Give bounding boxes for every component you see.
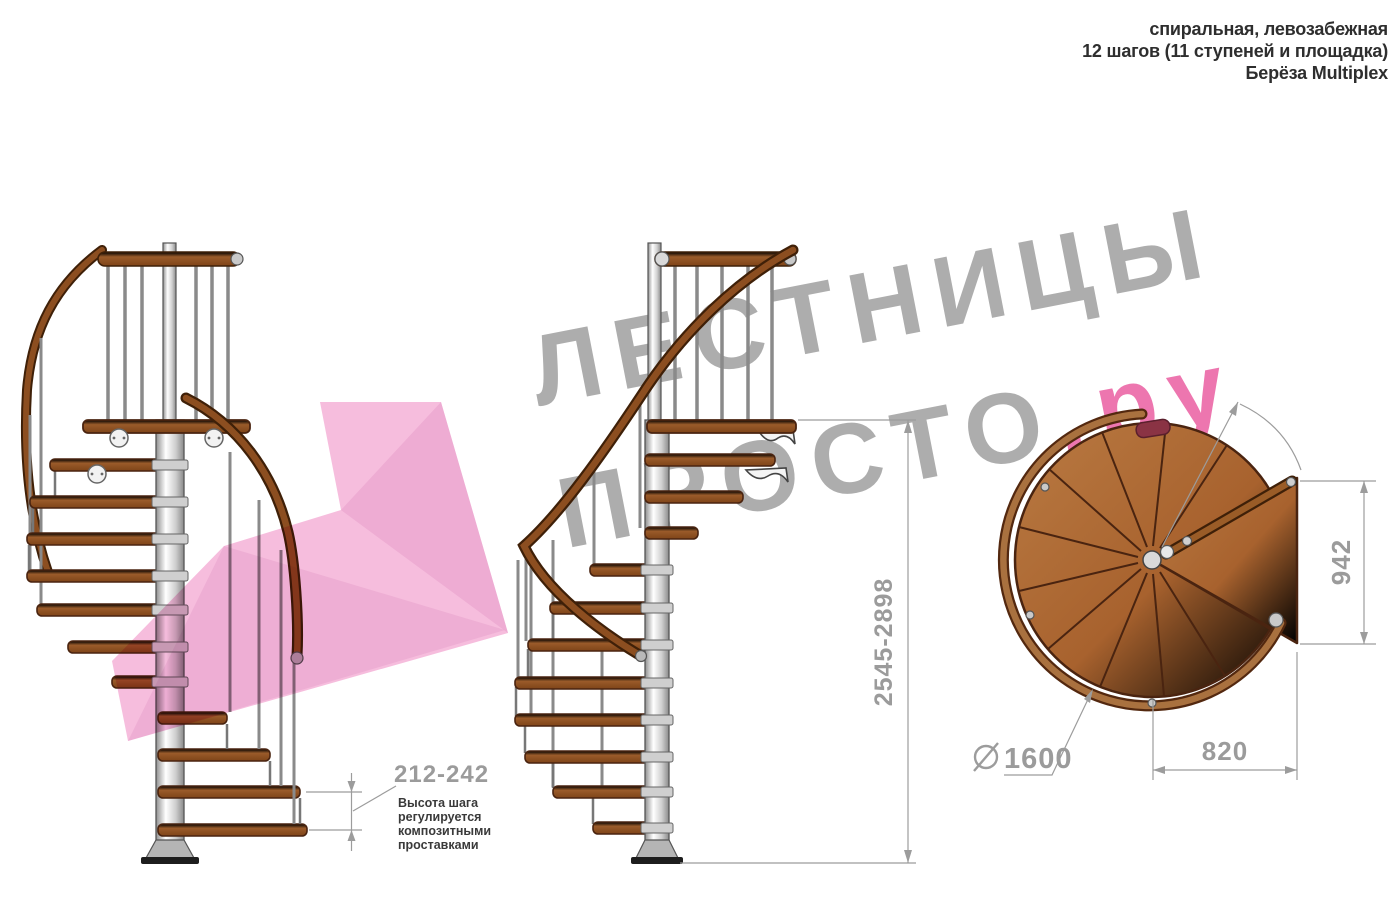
top-rail	[98, 252, 240, 266]
step-height-dimension	[306, 773, 396, 851]
support-bracket	[746, 468, 788, 482]
railing-post	[163, 243, 176, 425]
hole	[208, 437, 211, 440]
spacer	[641, 565, 673, 575]
title-block: спиральная, левозабежная 12 шагов (11 ст…	[1082, 18, 1388, 84]
step-height-note: Высота шага регулируется композитными пр…	[398, 796, 491, 852]
note-line: проставками	[398, 838, 491, 852]
spacer	[152, 497, 188, 507]
dim-arrow	[348, 830, 356, 841]
railing-post	[648, 243, 661, 425]
spacer	[641, 787, 673, 797]
note-line: композитными	[398, 824, 491, 838]
ferrule	[1269, 613, 1283, 627]
step	[645, 491, 743, 503]
note-line: Высота шага	[398, 796, 491, 810]
spacer	[641, 603, 673, 613]
staircase-type: спиральная, левозабежная	[1082, 18, 1388, 40]
plan-center-pole	[1143, 551, 1161, 569]
step	[645, 454, 775, 466]
angle-leader-arc	[1240, 404, 1301, 470]
plan-rail-endcap	[1287, 478, 1296, 487]
hole	[91, 473, 94, 476]
dim-arrow	[1285, 766, 1297, 774]
pole-base-flare	[146, 840, 194, 858]
pole-base-plate	[141, 857, 199, 864]
step	[158, 786, 300, 798]
spacer	[152, 534, 188, 544]
dim-1600-label: 1600	[1004, 743, 1073, 775]
dim-942-label: 942	[1326, 539, 1356, 585]
hole	[123, 437, 126, 440]
step	[645, 527, 698, 539]
balusters	[518, 402, 640, 787]
dim-step-height-label: 212-242	[394, 761, 489, 788]
spacer	[641, 752, 673, 762]
spacer	[641, 640, 673, 650]
step	[158, 824, 307, 836]
plan-rail-ferrule	[1183, 537, 1192, 546]
spacer	[641, 715, 673, 725]
ferrule	[1026, 611, 1034, 619]
outer-handrail-top	[26, 250, 102, 572]
ferrule	[1148, 699, 1156, 707]
step	[158, 749, 270, 761]
spacer	[152, 571, 188, 581]
spacer	[641, 823, 673, 833]
dim-arrow	[348, 781, 356, 792]
staircase-material: Берёза Multiplex	[1082, 62, 1388, 84]
staircase-drawing: 942 820 1600	[0, 0, 1400, 922]
pole-base-plate	[631, 857, 683, 864]
plan-rail-ball	[1161, 546, 1174, 559]
note-line: регулируется	[398, 810, 491, 824]
top-railing-balusters	[675, 266, 772, 420]
step-posts	[227, 724, 300, 824]
steps-right	[645, 454, 775, 539]
hole	[101, 473, 104, 476]
dim-arrow	[1360, 632, 1368, 644]
step	[30, 496, 172, 508]
spacer	[641, 678, 673, 688]
center-elevation-view	[515, 243, 796, 864]
pole-base-flare	[636, 840, 678, 858]
dim-820-label: 820	[1202, 736, 1248, 766]
hole	[218, 437, 221, 440]
spacer	[152, 460, 188, 470]
hole	[113, 437, 116, 440]
plan-view	[1003, 414, 1297, 707]
rail-end-ball	[231, 253, 243, 265]
dim-arrow	[904, 420, 912, 433]
dim-arrow	[1360, 481, 1368, 493]
step	[50, 459, 168, 471]
angle-leader-arrow	[1229, 402, 1238, 416]
diameter-symbol-slash	[974, 743, 998, 771]
dim-arrow	[904, 850, 912, 863]
dim-arrow	[1153, 766, 1165, 774]
staircase-steps-count: 12 шагов (11 ступеней и площадка)	[1082, 40, 1388, 62]
ferrule	[1041, 483, 1049, 491]
dim-total-height-label: 2545-2898	[870, 578, 898, 707]
platform-step	[647, 420, 796, 433]
rail-connector-ball	[655, 252, 669, 266]
handrail-end-cap	[636, 651, 647, 662]
note-leader	[353, 786, 396, 811]
